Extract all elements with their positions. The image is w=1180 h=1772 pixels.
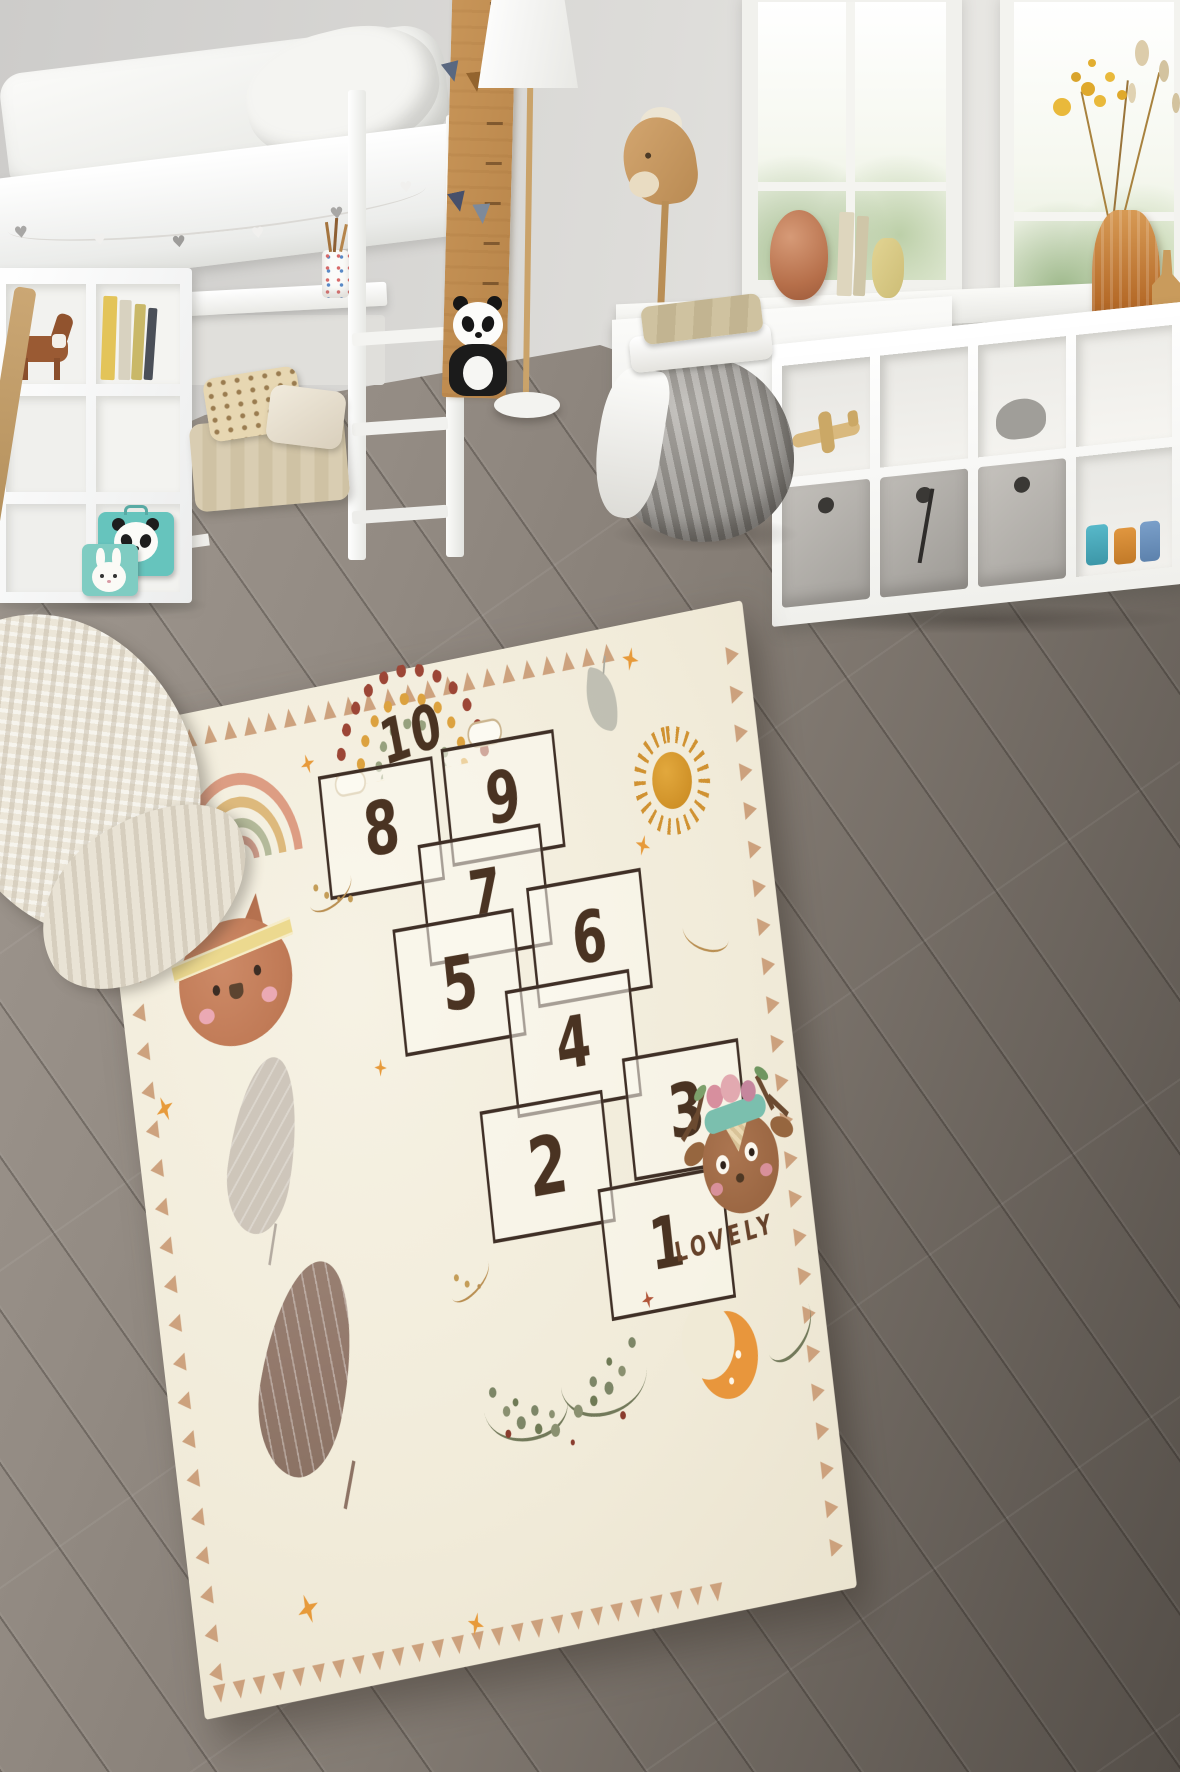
garland-heart-icon: ♥ — [398, 177, 413, 196]
toy-horse-sock — [52, 334, 66, 348]
lamp-base — [494, 392, 560, 418]
shelf-cell — [6, 396, 86, 492]
garland-heart-icon: ♥ — [92, 230, 107, 249]
toy-can — [1114, 527, 1136, 565]
number-label: 6 — [568, 894, 611, 983]
dried-flowers — [1035, 30, 1180, 230]
photo-kids-room: ♥ ♥ ♥ ♥ ♥ ♥ — [0, 0, 1180, 1772]
sparkle-star-icon — [374, 1059, 386, 1077]
soft-toy — [996, 396, 1046, 441]
laurel-wreath-icon — [478, 1323, 654, 1469]
bunny-nose-icon — [107, 580, 111, 583]
toy-plane-wing — [817, 410, 835, 454]
unit-cell-open — [880, 346, 968, 467]
toy-horse-leg — [54, 358, 60, 380]
sun-icon — [628, 719, 716, 842]
bunny-face-icon — [92, 562, 126, 592]
bunny-eye-icon — [113, 574, 117, 578]
deer-pupil — [720, 1160, 727, 1169]
garland-heart-icon: ♥ — [250, 223, 265, 242]
shelf-cell — [6, 504, 86, 592]
hobby-horse-eye — [645, 152, 652, 159]
ladder-rung — [352, 505, 449, 525]
number-label: 4 — [552, 999, 595, 1088]
unit-cell-open — [1076, 325, 1172, 447]
garland-heart-icon: ♥ — [171, 231, 187, 251]
unit-cell-open — [978, 336, 1066, 457]
floor-lamp — [470, 0, 590, 436]
bunny-eye-icon — [100, 574, 104, 578]
gold-sprig-icon — [682, 912, 730, 954]
window-mullion — [758, 182, 946, 191]
toy-can — [1140, 520, 1160, 562]
suitcase-bunny — [82, 544, 138, 596]
egg-vase — [770, 210, 828, 300]
sparkle-star-icon — [294, 1588, 323, 1629]
garland-heart-icon: ♥ — [13, 222, 29, 242]
deer-pupil — [748, 1147, 755, 1156]
number-label: 5 — [437, 936, 481, 1028]
book — [118, 300, 131, 380]
grey-feather-quill — [268, 1223, 277, 1265]
hopscotch-box-5: 5 — [392, 908, 526, 1057]
leaf-icon — [582, 652, 624, 734]
unit-cell-open — [782, 357, 870, 478]
ladder-rung — [352, 417, 449, 437]
bunny-tail-grass-icon — [1135, 40, 1149, 66]
hobby-horse-snout — [627, 169, 660, 199]
pencil-cup — [322, 250, 349, 298]
yellow-vase — [872, 238, 904, 298]
toy-can — [1086, 524, 1108, 566]
flower-stem — [1080, 91, 1111, 228]
grey-feather-icon — [219, 1047, 307, 1244]
unit-cell-open — [1076, 447, 1172, 577]
wreath-stem — [560, 1339, 647, 1417]
lamp-pole — [523, 88, 533, 400]
toy-plane-tail — [847, 410, 859, 428]
wreath-stem — [479, 1358, 572, 1456]
gold-sprig-icon — [445, 1251, 494, 1310]
tribal-feather-quill — [344, 1460, 356, 1509]
flower-head-icon — [1053, 98, 1071, 116]
shelf-cell — [96, 396, 180, 492]
cube-unit-right — [772, 302, 1180, 627]
ladder-post — [348, 90, 366, 560]
tribal-feather-icon — [247, 1246, 367, 1491]
hopscotch-rug: ▲▲▲▲▲▲▲▲▲▲▲▲▲▲▲▲▲▲▲▲▲▲▲▲▲▲ ▼▼▼▼▼▼▼▼▼▼▼▼▼… — [90, 600, 857, 1720]
drawer-hole — [818, 496, 834, 514]
number-label: 8 — [359, 782, 403, 874]
pillow-plain — [265, 384, 348, 451]
suitcase-handle — [124, 505, 148, 515]
hobby-horse-head — [618, 112, 702, 209]
sill-book — [837, 212, 855, 296]
leaf-blade — [583, 667, 620, 732]
book — [101, 296, 118, 380]
fabric-drawer — [978, 458, 1066, 587]
sparkle-star-icon — [298, 751, 316, 777]
drawer-hole — [1014, 476, 1030, 494]
panda-eye-icon — [138, 533, 153, 550]
lamp-shade — [478, 0, 578, 88]
crescent-moon-icon — [687, 1298, 767, 1412]
toy-plane — [790, 403, 864, 459]
fabric-drawer — [880, 468, 968, 597]
hopscotch-box-2: 2 — [480, 1090, 616, 1244]
number-label: 2 — [524, 1117, 572, 1217]
